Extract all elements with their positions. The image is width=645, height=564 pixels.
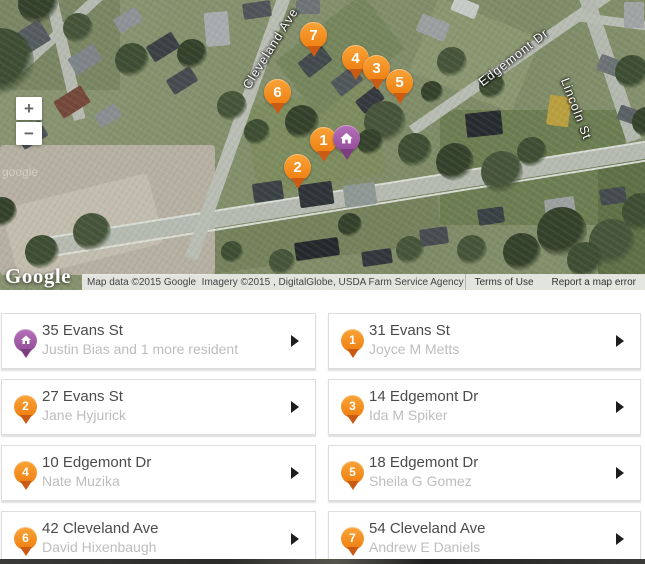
card-residents: Ida M Spiker (369, 407, 448, 423)
expand-arrow-icon[interactable] (291, 467, 299, 479)
expand-arrow-icon[interactable] (291, 335, 299, 347)
expand-arrow-icon[interactable] (291, 533, 299, 545)
card-pin-1: 1 (341, 329, 364, 352)
card-residents: Sheila G Gomez (369, 473, 472, 489)
map-marker-2[interactable]: 2 (284, 154, 311, 181)
address-card-3[interactable]: 3 14 Edgemont Dr Ida M Spiker (328, 379, 641, 435)
address-card-7[interactable]: 7 54 Cleveland Ave Andrew E Daniels (328, 511, 641, 564)
expand-arrow-icon[interactable] (616, 467, 624, 479)
card-pin-home (14, 329, 37, 352)
map-marker-5[interactable]: 5 (386, 69, 413, 96)
bottom-edge-bar (0, 559, 645, 564)
card-pin-5: 5 (341, 461, 364, 484)
card-address: 31 Evans St (369, 322, 450, 339)
card-address: 35 Evans St (42, 322, 123, 339)
street-label-lincoln-st: Lincoln St (558, 76, 594, 142)
card-pin-3: 3 (341, 395, 364, 418)
zoom-out-button[interactable]: − (16, 122, 42, 145)
expand-arrow-icon[interactable] (616, 335, 624, 347)
zoom-in-button[interactable]: + (16, 97, 42, 120)
address-card-home[interactable]: 35 Evans St Justin Bias and 1 more resid… (1, 313, 316, 369)
street-label-edgemont-dr: Edgemont Dr (476, 26, 551, 89)
map-marker-home[interactable] (333, 125, 360, 152)
tile-watermark: google (2, 165, 38, 179)
home-icon (339, 131, 354, 146)
map-marker-7[interactable]: 7 (300, 22, 327, 49)
map-zoom-control: + − (16, 97, 42, 147)
address-card-4[interactable]: 4 10 Edgemont Dr Nate Muzika (1, 445, 316, 501)
google-logo[interactable]: Google (5, 264, 71, 289)
address-card-5[interactable]: 5 18 Edgemont Dr Sheila G Gomez (328, 445, 641, 501)
card-residents: Nate Muzika (42, 473, 120, 489)
address-card-2[interactable]: 2 27 Evans St Jane Hyjurick (1, 379, 316, 435)
home-icon (20, 334, 32, 346)
map-attribution-bar: Map data ©2015 Google Imagery ©2015 , Di… (82, 274, 645, 290)
card-address: 14 Edgemont Dr (369, 388, 478, 405)
card-pin-2: 2 (14, 395, 37, 418)
expand-arrow-icon[interactable] (291, 401, 299, 413)
card-address: 10 Edgemont Dr (42, 454, 151, 471)
expand-arrow-icon[interactable] (616, 401, 624, 413)
map-marker-6[interactable]: 6 (264, 79, 291, 106)
address-card-6[interactable]: 6 42 Cleveland Ave David Hixenbaugh (1, 511, 316, 564)
card-residents: Joyce M Metts (369, 341, 459, 357)
card-pin-4: 4 (14, 461, 37, 484)
address-card-1[interactable]: 1 31 Evans St Joyce M Metts (328, 313, 641, 369)
report-map-error-link[interactable]: Report a map error (543, 277, 645, 288)
card-residents: Andrew E Daniels (369, 539, 480, 555)
card-residents: David Hixenbaugh (42, 539, 156, 555)
card-pin-7: 7 (341, 527, 364, 550)
card-address: 42 Cleveland Ave (42, 520, 158, 537)
map-data-text: Map data ©2015 Google Imagery ©2015 , Di… (82, 277, 465, 288)
terms-of-use-link[interactable]: Terms of Use (466, 277, 543, 288)
card-address: 27 Evans St (42, 388, 123, 405)
card-address: 18 Edgemont Dr (369, 454, 478, 471)
card-residents: Justin Bias and 1 more resident (42, 341, 238, 357)
card-pin-6: 6 (14, 527, 37, 550)
card-residents: Jane Hyjurick (42, 407, 126, 423)
card-address: 54 Cleveland Ave (369, 520, 485, 537)
neighbors-page: google Cleveland Ave Edgemont Dr Lincoln… (0, 0, 645, 564)
expand-arrow-icon[interactable] (616, 533, 624, 545)
map-satellite-view[interactable]: google Cleveland Ave Edgemont Dr Lincoln… (0, 0, 645, 290)
